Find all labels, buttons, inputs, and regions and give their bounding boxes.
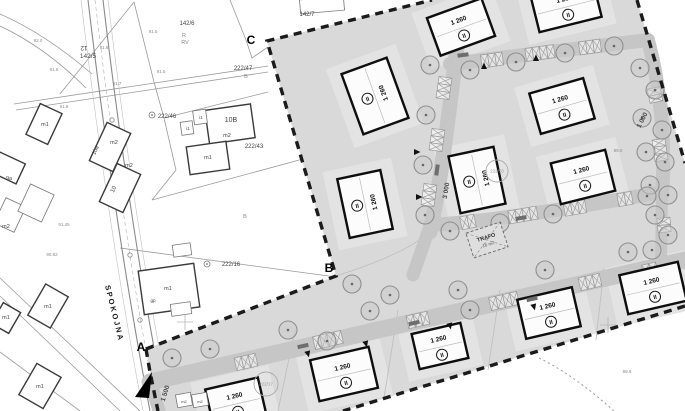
tree-center-dot — [646, 195, 649, 198]
boundary-point-label: A — [137, 340, 146, 354]
boundary-point-label: C — [247, 33, 256, 47]
map-label: B — [243, 214, 247, 220]
tree-center-dot — [429, 64, 432, 67]
tree-center-dot — [171, 357, 174, 360]
map-label: 222/43 — [245, 144, 264, 150]
tree-center-dot — [552, 213, 555, 216]
tree-center-dot — [424, 214, 427, 217]
existing-building — [170, 302, 191, 317]
map-label: m1 — [44, 304, 52, 310]
map-label: gp — [150, 298, 156, 303]
map-label: 12 — [80, 44, 88, 51]
map-label: 91.45 — [58, 222, 70, 227]
map-label: m2 — [197, 399, 203, 404]
parcel-circle-label: 222/17 — [259, 382, 273, 387]
tree-center-dot — [564, 52, 567, 55]
parking-stalls — [436, 76, 452, 99]
map-label: m1 — [41, 122, 49, 128]
tree-center-dot — [449, 230, 452, 233]
map-label: 92.0 — [34, 38, 43, 43]
parking-stalls — [460, 214, 477, 230]
tree-center-dot — [613, 45, 616, 48]
map-label: 91.5 — [157, 69, 166, 74]
map-label: 91.7 — [113, 81, 122, 86]
map-label: 142/5 — [80, 53, 97, 60]
survey-point-dot — [206, 263, 208, 265]
map-label: R — [182, 33, 186, 39]
map-label: 222/47 — [234, 66, 253, 72]
map-label: 222/46 — [158, 114, 177, 120]
map-label: 91.8 — [50, 67, 59, 72]
map-label: 89.8 — [623, 369, 632, 374]
tree-center-dot — [351, 283, 354, 286]
map-label: m2 — [181, 399, 187, 404]
map-label: RV — [181, 40, 189, 46]
tree-center-dot — [515, 61, 518, 64]
boundary-point-label: B — [325, 261, 334, 275]
tree-center-dot — [469, 309, 472, 312]
parking-stalls — [617, 191, 633, 206]
tree-center-dot — [457, 289, 460, 292]
parking-stalls — [578, 39, 601, 55]
map-label: 89.0 — [614, 148, 623, 153]
parking-stalls — [421, 183, 437, 206]
tree-center-dot — [667, 194, 670, 197]
tree-center-dot — [544, 269, 547, 272]
map-label: m1 — [164, 286, 172, 292]
tree-center-dot — [369, 310, 372, 313]
tree-center-dot — [667, 234, 670, 237]
map-label: m2 — [2, 224, 10, 230]
map-label: 142/6 — [179, 21, 195, 27]
map-label: 91.5 — [149, 29, 158, 34]
tree-center-dot — [326, 340, 329, 343]
map-label: m2 — [110, 140, 118, 146]
tree-center-dot — [425, 114, 428, 117]
map-label: m1 — [204, 155, 212, 161]
map-label: 91.6 — [100, 45, 109, 50]
map-label: m2 — [125, 163, 133, 169]
tree-center-dot — [422, 164, 425, 167]
tree-center-dot — [469, 69, 472, 72]
map-label: 90.82 — [46, 252, 58, 257]
map-label: 10B — [225, 117, 238, 124]
site-plan-map: TRAFO16 m21 260II1 260II1 260II1 260II1 … — [0, 0, 685, 411]
parcel-circle-label: 222/50 — [490, 169, 504, 174]
site-plan-svg: TRAFO16 m21 260II1 260II1 260II1 260II1 … — [0, 0, 685, 411]
map-label: B — [244, 74, 248, 80]
map-label: m1 — [2, 315, 10, 321]
tree-center-dot — [209, 348, 212, 351]
map-label: i1 — [186, 126, 190, 131]
tree-center-dot — [651, 249, 654, 252]
map-label: 222/16 — [222, 262, 241, 268]
tree-center-dot — [389, 294, 392, 297]
map-label: m2 — [223, 133, 231, 139]
map-label: 91.9 — [60, 104, 69, 109]
map-label: i1 — [199, 115, 203, 120]
tree-center-dot — [645, 151, 648, 154]
tree-center-dot — [649, 184, 652, 187]
survey-point-dot — [151, 114, 153, 116]
map-label: 9a — [6, 176, 13, 182]
tree-center-dot — [654, 214, 657, 217]
parking-stalls — [429, 128, 445, 151]
map-label: 142/7 — [299, 12, 315, 18]
tree-center-dot — [639, 67, 642, 70]
tree-center-dot — [661, 129, 664, 132]
tree-center-dot — [654, 89, 657, 92]
tree-center-dot — [664, 161, 667, 164]
existing-building — [172, 243, 191, 257]
map-label: m1 — [36, 384, 44, 390]
tree-center-dot — [287, 329, 290, 332]
tree-center-dot — [627, 251, 630, 254]
